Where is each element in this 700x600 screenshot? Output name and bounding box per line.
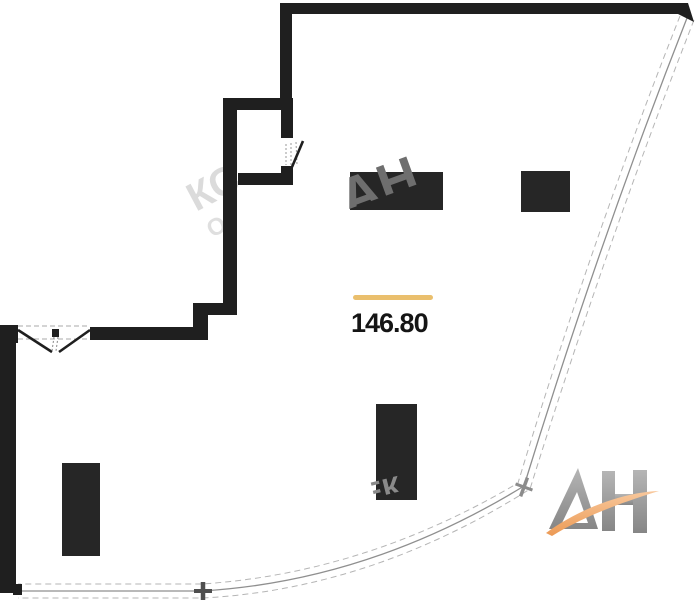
glazing-joint-marker xyxy=(512,475,536,500)
logo-graphic xyxy=(540,450,670,545)
furniture-block xyxy=(521,171,570,212)
door-leaf xyxy=(18,330,52,352)
floor-plan-page: КС О xyxy=(0,0,700,600)
wall-upper-vertical xyxy=(280,3,292,110)
wall-niche-bottom xyxy=(238,173,293,185)
wall-mid-vertical xyxy=(223,98,237,315)
glazing-joint-marker xyxy=(194,582,212,600)
wall-left xyxy=(0,325,16,593)
wall-top xyxy=(280,3,694,22)
agency-logo: АН xyxy=(540,450,670,545)
area-underline xyxy=(353,295,433,300)
furniture-blocks xyxy=(62,171,570,556)
door-leaf xyxy=(292,141,303,167)
niche-door-swing xyxy=(286,141,303,167)
door-center-post xyxy=(52,329,59,337)
door-leaf xyxy=(59,330,90,352)
entrance-double-door xyxy=(18,326,90,352)
area-label: 146.80 xyxy=(351,308,428,339)
wall-entrance-right xyxy=(90,327,208,340)
wall-niche-right-upper xyxy=(281,110,293,138)
wall-left-foot xyxy=(13,584,22,595)
furniture-block xyxy=(62,463,100,556)
